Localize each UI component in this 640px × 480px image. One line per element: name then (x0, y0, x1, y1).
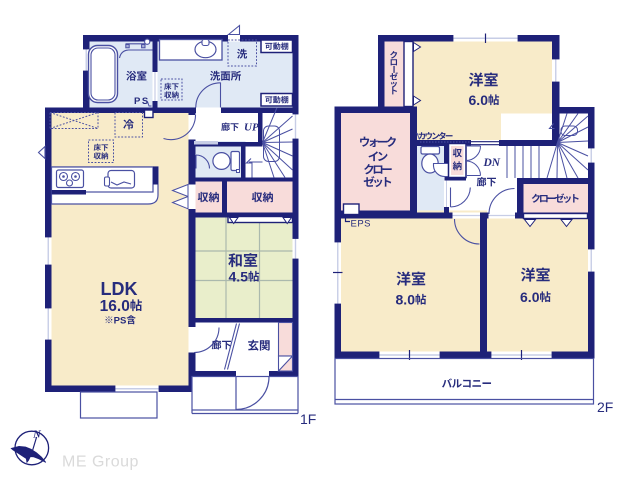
svg-text:16.0: 16.0 (100, 298, 130, 315)
svg-text:DN: DN (483, 157, 501, 169)
svg-text:6.0: 6.0 (520, 289, 540, 305)
svg-text:UP: UP (244, 122, 259, 134)
svg-text:ME Group: ME Group (62, 454, 139, 471)
svg-text:LDK: LDK (101, 279, 138, 299)
svg-text:1F: 1F (300, 411, 316, 427)
svg-text:8.0: 8.0 (396, 292, 416, 308)
svg-text:4.5: 4.5 (229, 269, 249, 285)
svg-text:N: N (32, 430, 41, 441)
svg-text:PS: PS (134, 96, 150, 107)
svg-text:2F: 2F (597, 399, 613, 415)
svg-text:EPS: EPS (351, 219, 372, 230)
svg-text:PS: PS (114, 315, 127, 326)
svg-text:6.0: 6.0 (469, 92, 489, 108)
